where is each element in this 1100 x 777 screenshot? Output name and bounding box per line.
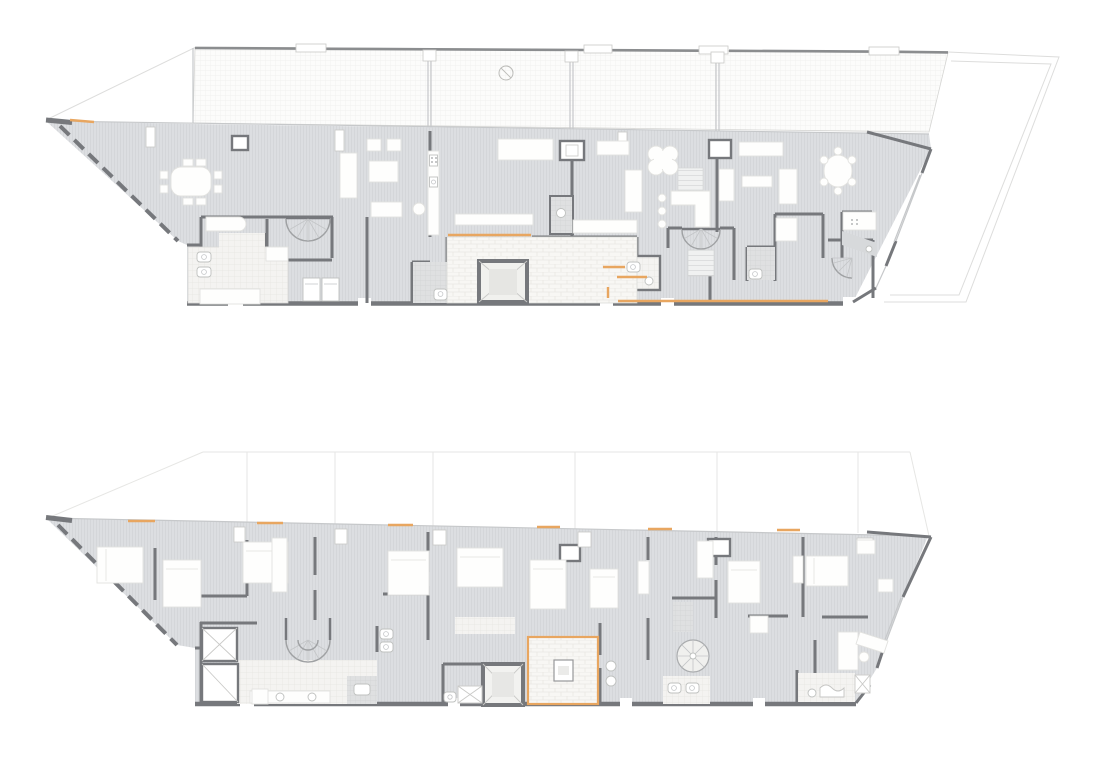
- column-duct: [560, 545, 580, 561]
- sofa: [371, 202, 402, 217]
- bed: [728, 561, 760, 603]
- sink: [606, 676, 616, 686]
- bidet: [380, 642, 393, 652]
- spiral-stair: [677, 640, 709, 672]
- mullion-post: [565, 51, 578, 62]
- cabinet: [252, 689, 268, 704]
- wardrobe: [857, 540, 875, 554]
- shaft-inner: [558, 666, 569, 675]
- kitchen-island: [498, 139, 553, 160]
- planter: [869, 47, 899, 55]
- dining-table: [171, 167, 211, 196]
- bed: [163, 560, 201, 607]
- sideboard: [573, 220, 637, 233]
- column-duct: [709, 140, 731, 158]
- shower: [202, 628, 237, 661]
- planter: [584, 45, 612, 53]
- elevator-cab: [492, 672, 514, 697]
- shower: [458, 686, 482, 703]
- toilet: [444, 692, 456, 702]
- light-well: [528, 637, 598, 704]
- bed: [697, 541, 713, 578]
- toilet: [434, 289, 447, 300]
- planter: [296, 44, 326, 52]
- toilet: [627, 262, 640, 272]
- elevator-core: [483, 664, 523, 705]
- mullion-post: [711, 52, 724, 63]
- bed: [806, 556, 848, 586]
- bed: [457, 548, 503, 587]
- corner-wall: [46, 120, 72, 123]
- chimney-duct: [232, 136, 248, 150]
- straight-stair-run: [688, 250, 714, 276]
- sink: [606, 661, 616, 671]
- corner-wall: [46, 518, 72, 521]
- sink: [308, 693, 316, 701]
- toilet: [354, 684, 370, 695]
- pouf: [413, 203, 425, 215]
- toilet: [749, 269, 762, 279]
- bathtub: [266, 247, 288, 261]
- coffee-table: [742, 176, 772, 187]
- shower: [202, 664, 238, 702]
- stool: [658, 207, 666, 215]
- toilet: [380, 629, 393, 639]
- mullion-post: [423, 50, 436, 61]
- armchair: [387, 139, 401, 151]
- armchair: [719, 169, 734, 201]
- stool: [658, 220, 666, 228]
- kitchen-sink: [430, 177, 438, 187]
- armchair: [367, 139, 381, 151]
- bidet: [686, 683, 699, 693]
- kitchen-counter: [206, 217, 246, 231]
- door-opening: [753, 698, 765, 709]
- kitchen-sink: [866, 246, 872, 252]
- pier: [335, 529, 347, 544]
- stool: [658, 194, 666, 202]
- floor-plan-drawing: [0, 0, 1100, 777]
- duct-liner: [566, 145, 578, 156]
- elevator-cab: [489, 269, 517, 295]
- pier: [433, 530, 446, 545]
- wardrobe: [638, 561, 649, 594]
- lower-floor-plan: [46, 452, 931, 709]
- pier: [335, 130, 344, 151]
- nightstand: [878, 579, 893, 592]
- lounge-sofa: [648, 146, 678, 175]
- bed: [838, 632, 858, 670]
- roof-terrace: [193, 44, 948, 132]
- sink: [276, 693, 284, 701]
- door-opening: [358, 298, 371, 309]
- sofa: [340, 153, 357, 198]
- coffee-table: [369, 161, 398, 182]
- toilet: [197, 252, 211, 262]
- washer: [303, 278, 320, 301]
- elevator-core: [479, 261, 527, 302]
- armchair: [779, 169, 797, 204]
- bathroom-floor: [673, 602, 693, 632]
- wc-sink: [557, 209, 566, 218]
- desk-chair: [859, 652, 869, 662]
- shower: [855, 675, 870, 693]
- bench: [455, 214, 533, 225]
- sofa: [625, 170, 642, 212]
- cabinet: [750, 616, 768, 633]
- floor-plan-sheet: [0, 0, 1100, 777]
- straight-stair-run: [678, 168, 703, 190]
- bed: [97, 547, 143, 583]
- door-opening: [661, 298, 674, 309]
- toilet: [668, 683, 681, 693]
- wardrobe: [272, 538, 287, 592]
- pier: [234, 527, 245, 542]
- bed: [388, 551, 429, 595]
- bathroom-floor: [455, 617, 515, 634]
- bed: [530, 560, 566, 609]
- upper-floor-plan: [46, 44, 1059, 309]
- sofa: [597, 141, 629, 155]
- kitchen-counter: [843, 212, 876, 230]
- wardrobe: [793, 556, 803, 583]
- daybed: [776, 218, 797, 241]
- pier: [578, 532, 591, 547]
- kitchen-tile-floor: [219, 233, 265, 288]
- door-opening: [620, 698, 632, 709]
- dryer: [322, 278, 339, 301]
- laundry-counter: [200, 289, 260, 304]
- cooktop: [430, 155, 438, 166]
- bed: [590, 569, 618, 608]
- sink: [808, 689, 816, 697]
- pier: [146, 127, 155, 147]
- sofa: [739, 142, 783, 156]
- bidet: [197, 267, 211, 277]
